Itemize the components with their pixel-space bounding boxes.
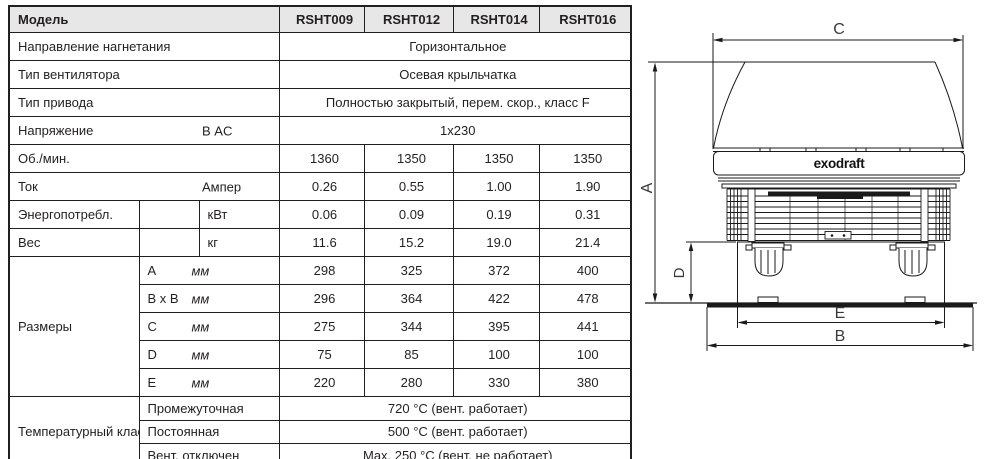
dim-label-e: E bbox=[835, 305, 846, 322]
row-label-with-unit: Напряжение В AC bbox=[9, 117, 279, 145]
row-value: Горизонтальное bbox=[279, 33, 631, 61]
dim-unit: мм bbox=[192, 263, 210, 278]
row-voltage: Напряжение В AC 1x230 bbox=[9, 117, 631, 145]
model-name-rsht014: RSHT014 bbox=[453, 6, 539, 33]
dim-unit: мм bbox=[192, 347, 210, 362]
value-cell: 325 bbox=[364, 257, 453, 285]
temp-mode-label: Вент. отключен bbox=[139, 444, 279, 459]
row-weight: Вес кг 11.6 15.2 19.0 21.4 bbox=[9, 229, 631, 257]
value-cell: 100 bbox=[453, 341, 539, 369]
dim-letter: D bbox=[148, 347, 157, 362]
dim-label-d: D bbox=[671, 267, 688, 278]
value-cell: 372 bbox=[453, 257, 539, 285]
row-label-with-unit: Ток Ампер bbox=[9, 173, 279, 201]
value-cell: 296 bbox=[279, 285, 364, 313]
dim-letter: E bbox=[148, 375, 157, 390]
dim-name-cell: A мм bbox=[139, 257, 279, 285]
model-name-rsht009: RSHT009 bbox=[279, 6, 364, 33]
value-cell: 344 bbox=[364, 313, 453, 341]
value-cell: 1.90 bbox=[539, 173, 631, 201]
dimension-c bbox=[713, 33, 963, 149]
row-direction: Направление нагнетания Горизонтальное bbox=[9, 33, 631, 61]
value-cell: 380 bbox=[539, 369, 631, 397]
empty-cell bbox=[139, 229, 199, 257]
value-cell: 400 bbox=[539, 257, 631, 285]
row-drive-type: Тип привода Полностью закрытый, перем. с… bbox=[9, 89, 631, 117]
support-post-left bbox=[748, 189, 755, 242]
model-name-rsht016: RSHT016 bbox=[539, 6, 631, 33]
exodraft-logo: exodraft bbox=[814, 156, 866, 171]
row-value: 1x230 bbox=[279, 117, 631, 145]
dim-unit: мм bbox=[192, 375, 210, 390]
dim-name-cell: E мм bbox=[139, 369, 279, 397]
fan-technical-drawing: C A D E B exodraft bbox=[638, 0, 998, 459]
value-cell: 220 bbox=[279, 369, 364, 397]
model-name-rsht012: RSHT012 bbox=[364, 6, 453, 33]
value-cell: 0.31 bbox=[539, 201, 631, 229]
dim-unit: мм bbox=[192, 291, 210, 306]
row-label: Ток bbox=[18, 179, 38, 194]
value-cell: 85 bbox=[364, 341, 453, 369]
louver-section bbox=[727, 189, 950, 242]
value-cell: 15.2 bbox=[364, 229, 453, 257]
row-label: Об./мин. bbox=[9, 145, 279, 173]
dim-unit: мм bbox=[192, 319, 210, 334]
value-cell: 298 bbox=[279, 257, 364, 285]
fan-hood bbox=[648, 62, 964, 152]
row-label: Тип привода bbox=[9, 89, 279, 117]
temp-value: 720 °C (вент. работает) bbox=[279, 397, 631, 421]
value-cell: 1360 bbox=[279, 145, 364, 173]
row-unit: кВт bbox=[199, 201, 279, 229]
row-label: Энергопотребл. bbox=[9, 201, 139, 229]
row-label: Напряжение bbox=[18, 123, 93, 138]
header-row: Модель RSHT009 RSHT012 RSHT014 RSHT016 bbox=[9, 6, 631, 33]
dim-letter: C bbox=[148, 319, 157, 334]
dim-name-cell: B x B мм bbox=[139, 285, 279, 313]
temp-value: Max. 250 °C (вент. не работает) bbox=[279, 444, 631, 459]
value-cell: 395 bbox=[453, 313, 539, 341]
value-cell: 0.09 bbox=[364, 201, 453, 229]
row-label: Тип вентилятора bbox=[9, 61, 279, 89]
dim-name-cell: C мм bbox=[139, 313, 279, 341]
spec-table: Модель RSHT009 RSHT012 RSHT014 RSHT016 Н… bbox=[8, 5, 632, 459]
temp-value: 500 °C (вент. работает) bbox=[279, 420, 631, 444]
model-header-label: Модель bbox=[9, 6, 279, 33]
temperature-group-label: Температурный класс bbox=[9, 397, 139, 459]
row-unit: Ампер bbox=[202, 179, 241, 194]
dimensions-group-label: Размеры bbox=[9, 257, 139, 397]
motor-bar bbox=[768, 192, 910, 196]
row-unit: кг bbox=[199, 229, 279, 257]
row-label: Направление нагнетания bbox=[9, 33, 279, 61]
value-cell: 0.55 bbox=[364, 173, 453, 201]
value-cell: 330 bbox=[453, 369, 539, 397]
value-cell: 364 bbox=[364, 285, 453, 313]
value-cell: 75 bbox=[279, 341, 364, 369]
row-value: Осевая крыльчатка bbox=[279, 61, 631, 89]
dim-letter: B x B bbox=[148, 291, 179, 306]
value-cell: 1350 bbox=[539, 145, 631, 173]
support-post-right bbox=[921, 189, 928, 242]
dim-letter: A bbox=[148, 263, 157, 278]
datasheet-page: Модель RSHT009 RSHT012 RSHT014 RSHT016 Н… bbox=[0, 0, 998, 459]
value-cell: 0.19 bbox=[453, 201, 539, 229]
row-fan-type: Тип вентилятора Осевая крыльчатка bbox=[9, 61, 631, 89]
dim-label-b: B bbox=[835, 328, 846, 345]
row-dimension-a: Размеры A мм 298 325 372 400 bbox=[9, 257, 631, 285]
dimension-d bbox=[686, 242, 736, 303]
value-cell: 1350 bbox=[364, 145, 453, 173]
row-value: Полностью закрытый, перем. скор., класс … bbox=[279, 89, 631, 117]
dim-name-cell: D мм bbox=[139, 341, 279, 369]
row-unit: В AC bbox=[202, 123, 232, 138]
value-cell: 100 bbox=[539, 341, 631, 369]
value-cell: 19.0 bbox=[453, 229, 539, 257]
value-cell: 1350 bbox=[453, 145, 539, 173]
value-cell: 478 bbox=[539, 285, 631, 313]
empty-cell bbox=[139, 201, 199, 229]
value-cell: 441 bbox=[539, 313, 631, 341]
dimension-a bbox=[653, 63, 658, 303]
value-cell: 422 bbox=[453, 285, 539, 313]
dim-label-c: C bbox=[833, 21, 845, 38]
row-power: Энергопотребл. кВт 0.06 0.09 0.19 0.31 bbox=[9, 201, 631, 229]
row-temp-intermittent: Температурный класс Промежуточная 720 °C… bbox=[9, 397, 631, 421]
value-cell: 21.4 bbox=[539, 229, 631, 257]
value-cell: 11.6 bbox=[279, 229, 364, 257]
fan-drawing-svg: C A D E B exodraft bbox=[638, 0, 998, 459]
value-cell: 280 bbox=[364, 369, 453, 397]
temp-mode-label: Промежуточная bbox=[139, 397, 279, 421]
row-label: Вес bbox=[9, 229, 139, 257]
temp-mode-label: Постоянная bbox=[139, 420, 279, 444]
value-cell: 1.00 bbox=[453, 173, 539, 201]
dim-label-a: A bbox=[639, 182, 656, 193]
value-cell: 0.06 bbox=[279, 201, 364, 229]
value-cell: 0.26 bbox=[279, 173, 364, 201]
value-cell: 275 bbox=[279, 313, 364, 341]
row-rpm: Об./мин. 1360 1350 1350 1350 bbox=[9, 145, 631, 173]
row-current: Ток Ампер 0.26 0.55 1.00 1.90 bbox=[9, 173, 631, 201]
